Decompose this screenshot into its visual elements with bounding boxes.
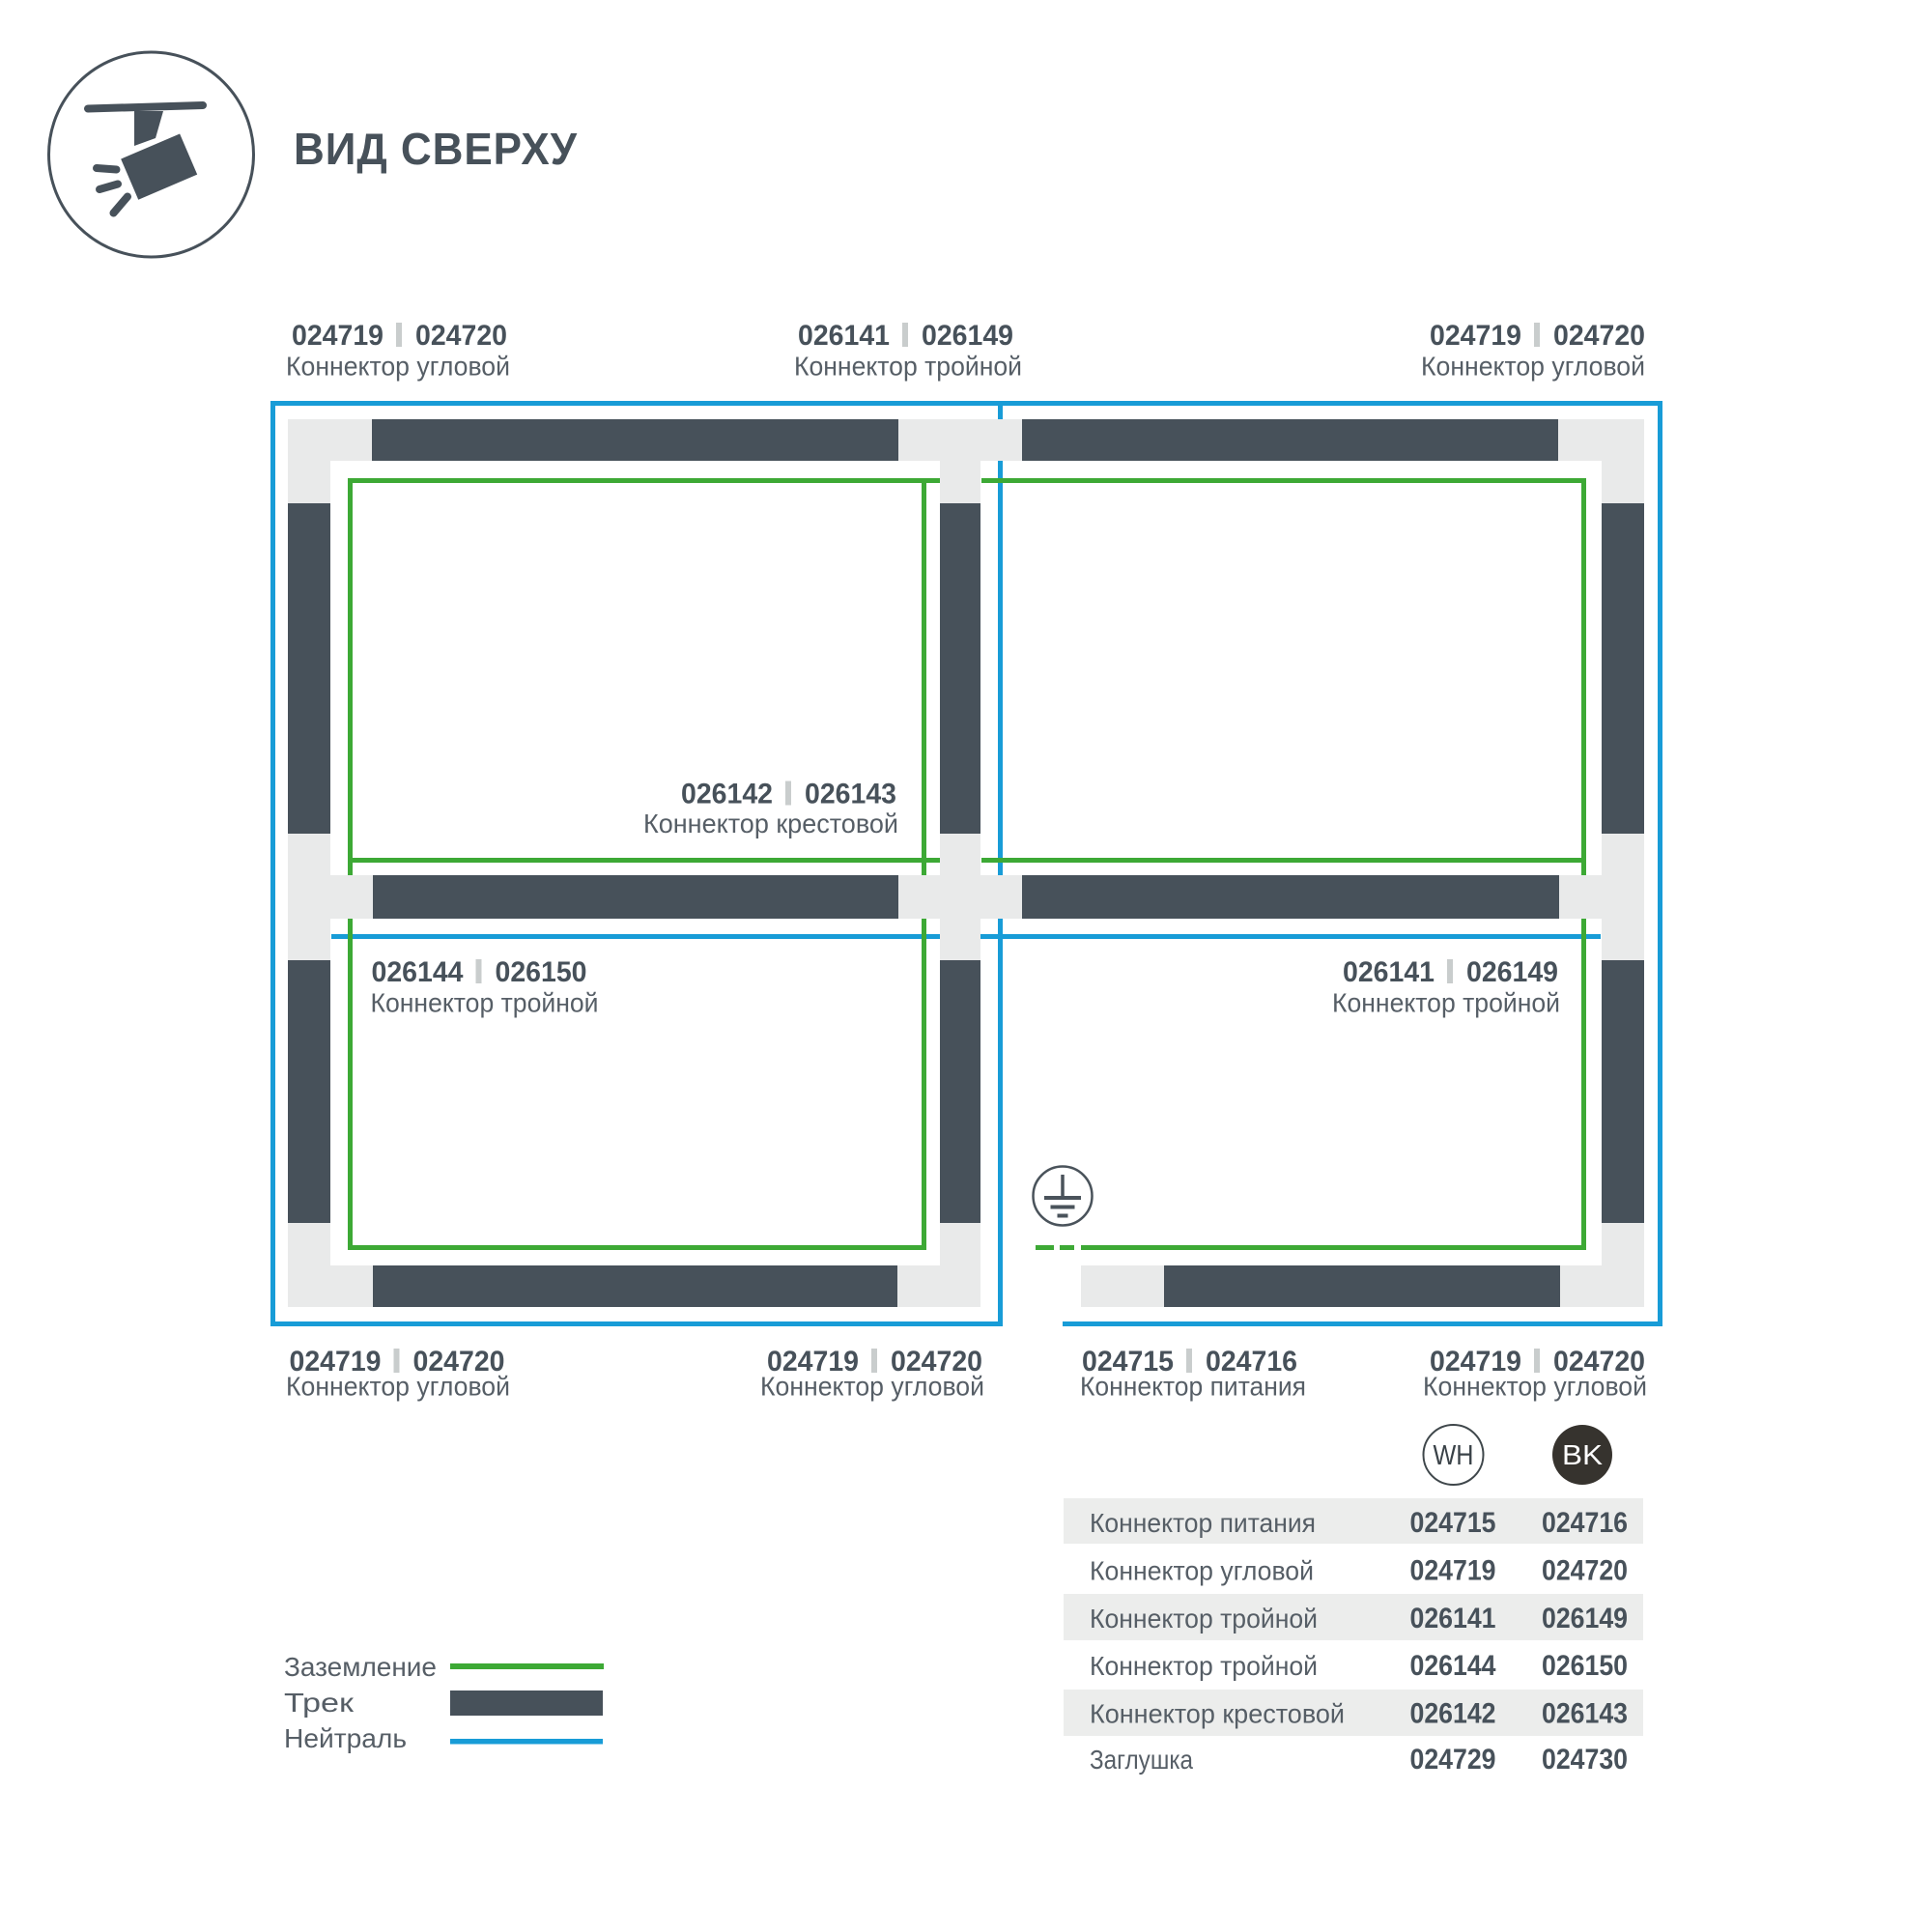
- svg-text:026142: 026142: [681, 779, 773, 810]
- svg-text:026149: 026149: [922, 320, 1013, 352]
- svg-text:024719: 024719: [1430, 320, 1521, 352]
- svg-text:026141: 026141: [1343, 956, 1435, 988]
- svg-text:Нейтраль: Нейтраль: [284, 1723, 407, 1753]
- svg-text:024716: 024716: [1542, 1507, 1628, 1539]
- svg-text:024720: 024720: [1553, 320, 1645, 352]
- svg-text:026144: 026144: [372, 956, 464, 988]
- svg-text:Коннектор тройной: Коннектор тройной: [1090, 1604, 1318, 1634]
- svg-text:026143: 026143: [805, 779, 896, 810]
- svg-text:Коннектор тройной: Коннектор тройной: [1332, 988, 1560, 1018]
- svg-text:024715: 024715: [1410, 1507, 1496, 1539]
- svg-text:024729: 024729: [1410, 1744, 1496, 1776]
- svg-text:024719: 024719: [292, 320, 384, 352]
- svg-text:026150: 026150: [1542, 1650, 1628, 1682]
- svg-text:BK: BK: [1562, 1440, 1604, 1471]
- svg-text:Коннектор угловой: Коннектор угловой: [286, 1372, 510, 1402]
- svg-text:Коннектор тройной: Коннектор тройной: [794, 352, 1022, 382]
- svg-text:026142: 026142: [1410, 1698, 1496, 1730]
- svg-text:024719: 024719: [1410, 1554, 1496, 1586]
- svg-text:026144: 026144: [1410, 1650, 1496, 1682]
- svg-text:Коннектор угловой: Коннектор угловой: [1423, 1372, 1647, 1402]
- svg-text:WH: WH: [1434, 1440, 1474, 1471]
- svg-text:024720: 024720: [1542, 1554, 1628, 1586]
- svg-text:Коннектор питания: Коннектор питания: [1090, 1508, 1316, 1538]
- svg-text:026149: 026149: [1466, 956, 1558, 988]
- svg-text:Коннектор тройной: Коннектор тройной: [371, 988, 599, 1018]
- svg-text:Заглушка: Заглушка: [1090, 1745, 1193, 1775]
- svg-text:026150: 026150: [496, 956, 587, 988]
- svg-text:026143: 026143: [1542, 1698, 1628, 1730]
- svg-text:ВИД СВЕРХУ: ВИД СВЕРХУ: [294, 124, 578, 174]
- svg-text:Коннектор тройной: Коннектор тройной: [1090, 1651, 1318, 1681]
- svg-text:024730: 024730: [1542, 1744, 1628, 1776]
- svg-text:026149: 026149: [1542, 1603, 1628, 1634]
- svg-text:Коннектор крестовой: Коннектор крестовой: [1090, 1699, 1345, 1729]
- svg-text:Коннектор угловой: Коннектор угловой: [1090, 1555, 1314, 1585]
- svg-text:Коннектор угловой: Коннектор угловой: [760, 1372, 984, 1402]
- svg-text:Коннектор угловой: Коннектор угловой: [1421, 352, 1645, 382]
- svg-text:Коннектор угловой: Коннектор угловой: [286, 352, 510, 382]
- svg-text:Коннектор крестовой: Коннектор крестовой: [643, 809, 898, 838]
- svg-text:Коннектор питания: Коннектор питания: [1080, 1372, 1306, 1402]
- svg-text:026141: 026141: [1410, 1603, 1496, 1634]
- svg-text:026141: 026141: [798, 320, 890, 352]
- svg-text:Трек: Трек: [284, 1688, 355, 1718]
- svg-text:Заземление: Заземление: [284, 1652, 437, 1682]
- svg-text:024720: 024720: [415, 320, 507, 352]
